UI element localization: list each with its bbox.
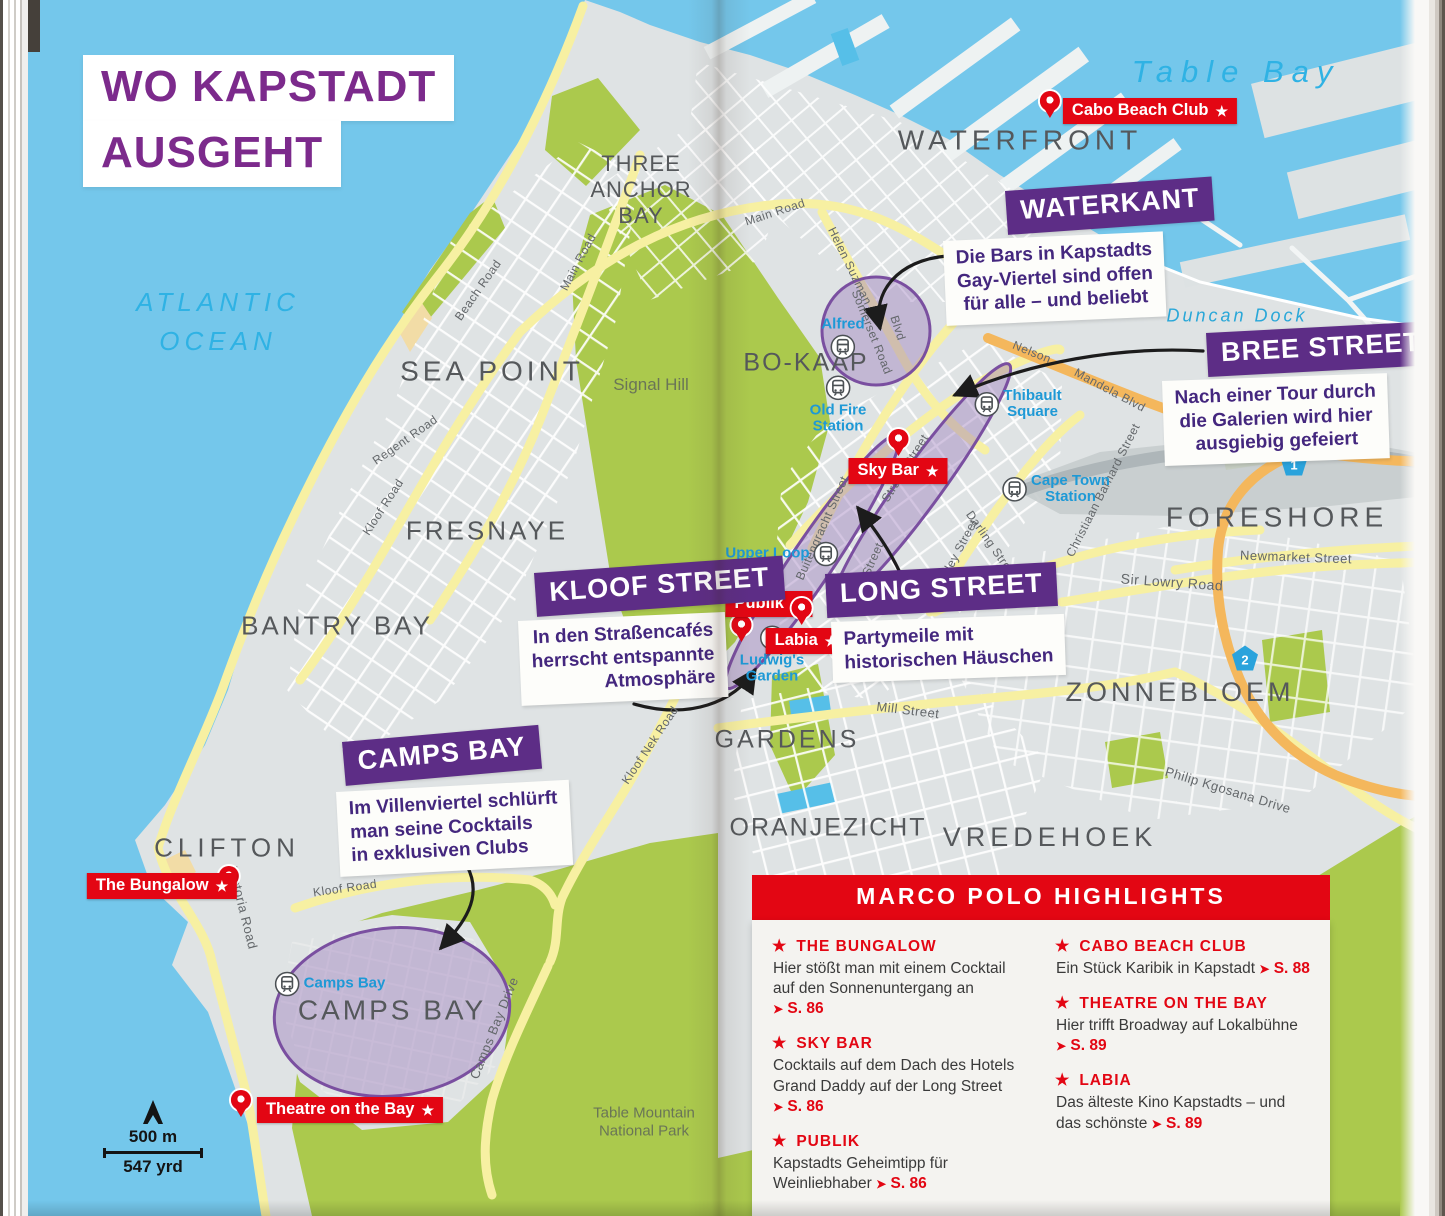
page-edge-right — [1400, 0, 1445, 1216]
arrow-icon: ➤ — [773, 1002, 783, 1016]
scale-bar — [103, 1151, 203, 1154]
page-reference: ➤ S. 86 — [773, 1098, 824, 1115]
highlight-description: Hier trifft Broadway auf Lokalbühne ➤ S.… — [1056, 1016, 1310, 1056]
page-reference: ➤ S. 88 — [1259, 960, 1310, 977]
page-title-line1: WO KAPSTADT — [83, 55, 454, 121]
arrow-icon: ➤ — [1259, 962, 1269, 976]
highlights-left-column: ★ THE BUNGALOW Hier stößt man mit einem … — [772, 938, 1027, 1194]
highlight-description: Hier stößt man mit einem Cocktail auf de… — [773, 959, 1027, 1019]
scale-metric: 500 m — [100, 1127, 206, 1147]
highlight-title: PUBLIK — [796, 1133, 860, 1151]
highlight-entry: ★ THEATRE ON THE BAY Hier trifft Broadwa… — [1055, 995, 1310, 1056]
north-arrow-icon — [143, 1100, 163, 1124]
star-icon: ★ — [1055, 1073, 1070, 1089]
arrow-icon: ➤ — [1056, 1039, 1066, 1053]
callout-long-street: LONG STREET Partymeile mit historischen … — [825, 574, 1064, 683]
page-title-line2: AUSGEHT — [83, 121, 341, 187]
star-icon: ★ — [1055, 996, 1070, 1012]
callout-camps-text: Im Villenviertel schlürft man seine Cock… — [336, 780, 573, 877]
page-reference: ➤ S. 86 — [773, 1000, 824, 1017]
highlight-title: CABO BEACH CLUB — [1079, 938, 1246, 956]
arrow-icon: ➤ — [876, 1177, 886, 1191]
marco-polo-highlights: MARCO POLO HIGHLIGHTS ★ THE BUNGALOW Hie… — [752, 875, 1330, 1216]
highlight-title: THEATRE ON THE BAY — [1079, 995, 1268, 1013]
highlights-header: MARCO POLO HIGHLIGHTS — [752, 875, 1330, 920]
arrow-icon: ➤ — [1152, 1117, 1162, 1131]
highlight-entry: ★ PUBLIK Kapstadts Geheimtipp für Weinli… — [772, 1133, 1027, 1194]
highlight-description: Ein Stück Karibik in Kapstadt ➤ S. 88 — [1056, 959, 1310, 979]
page-title: WO KAPSTADT AUSGEHT — [83, 55, 454, 187]
highlight-entry: ★ SKY BAR Cocktails auf dem Dach des Hot… — [772, 1035, 1027, 1116]
callout-kloof-text: In den Straßencafés herrscht entspannte … — [518, 612, 728, 706]
highlight-entry: ★ CABO BEACH CLUB Ein Stück Karibik in K… — [1055, 938, 1310, 979]
highlight-title: LABIA — [1079, 1072, 1131, 1090]
page-reference: ➤ S. 89 — [1152, 1115, 1203, 1132]
highlight-entry: ★ LABIA Das älteste Kino Kapstadts – und… — [1055, 1072, 1310, 1133]
highlight-description: Kapstadts Geheimtipp für Weinliebhaber ➤… — [773, 1154, 1027, 1194]
highlights-right-column: ★ CABO BEACH CLUB Ein Stück Karibik in K… — [1055, 938, 1310, 1194]
map-scale: 500 m 547 yrd — [100, 1100, 206, 1177]
highlight-title: SKY BAR — [796, 1035, 872, 1053]
page-edge-left — [0, 0, 28, 1216]
book-spread: ATLANTIC OCEAN Table Bay Duncan Dock THR… — [0, 0, 1445, 1216]
star-icon: ★ — [772, 939, 787, 955]
callout-kloof-street: KLOOF STREET In den Straßencafés herrsch… — [534, 573, 783, 706]
callout-waterkant-text: Die Bars in Kapstadts Gay-Viertel sind o… — [943, 231, 1167, 325]
highlight-title: THE BUNGALOW — [796, 938, 936, 956]
arrow-icon: ➤ — [773, 1100, 783, 1114]
page-reference: ➤ S. 89 — [1056, 1037, 1107, 1054]
star-icon: ★ — [772, 1134, 787, 1150]
highlight-description: Cocktails auf dem Dach des Hotels Grand … — [773, 1056, 1027, 1116]
highlight-description: Das älteste Kino Kapstadts – und das sch… — [1056, 1093, 1310, 1133]
star-icon: ★ — [1055, 939, 1070, 955]
callout-bree-text: Nach einer Tour durch die Galerien wird … — [1162, 373, 1390, 465]
callout-waterkant: WATERKANT Die Bars in Kapstadts Gay-Vier… — [1005, 191, 1212, 326]
highlights-body: ★ THE BUNGALOW Hier stößt man mit einem … — [752, 920, 1330, 1216]
highlight-entry: ★ THE BUNGALOW Hier stößt man mit einem … — [772, 938, 1027, 1019]
star-icon: ★ — [772, 1036, 787, 1052]
scale-imperial: 547 yrd — [100, 1157, 206, 1177]
callout-long-text: Partymeile mit historischen Häuschen — [831, 614, 1066, 683]
callout-camps-bay: CAMPS BAY Im Villenviertel schlürft man … — [342, 742, 569, 877]
page-reference: ➤ S. 86 — [876, 1175, 927, 1192]
